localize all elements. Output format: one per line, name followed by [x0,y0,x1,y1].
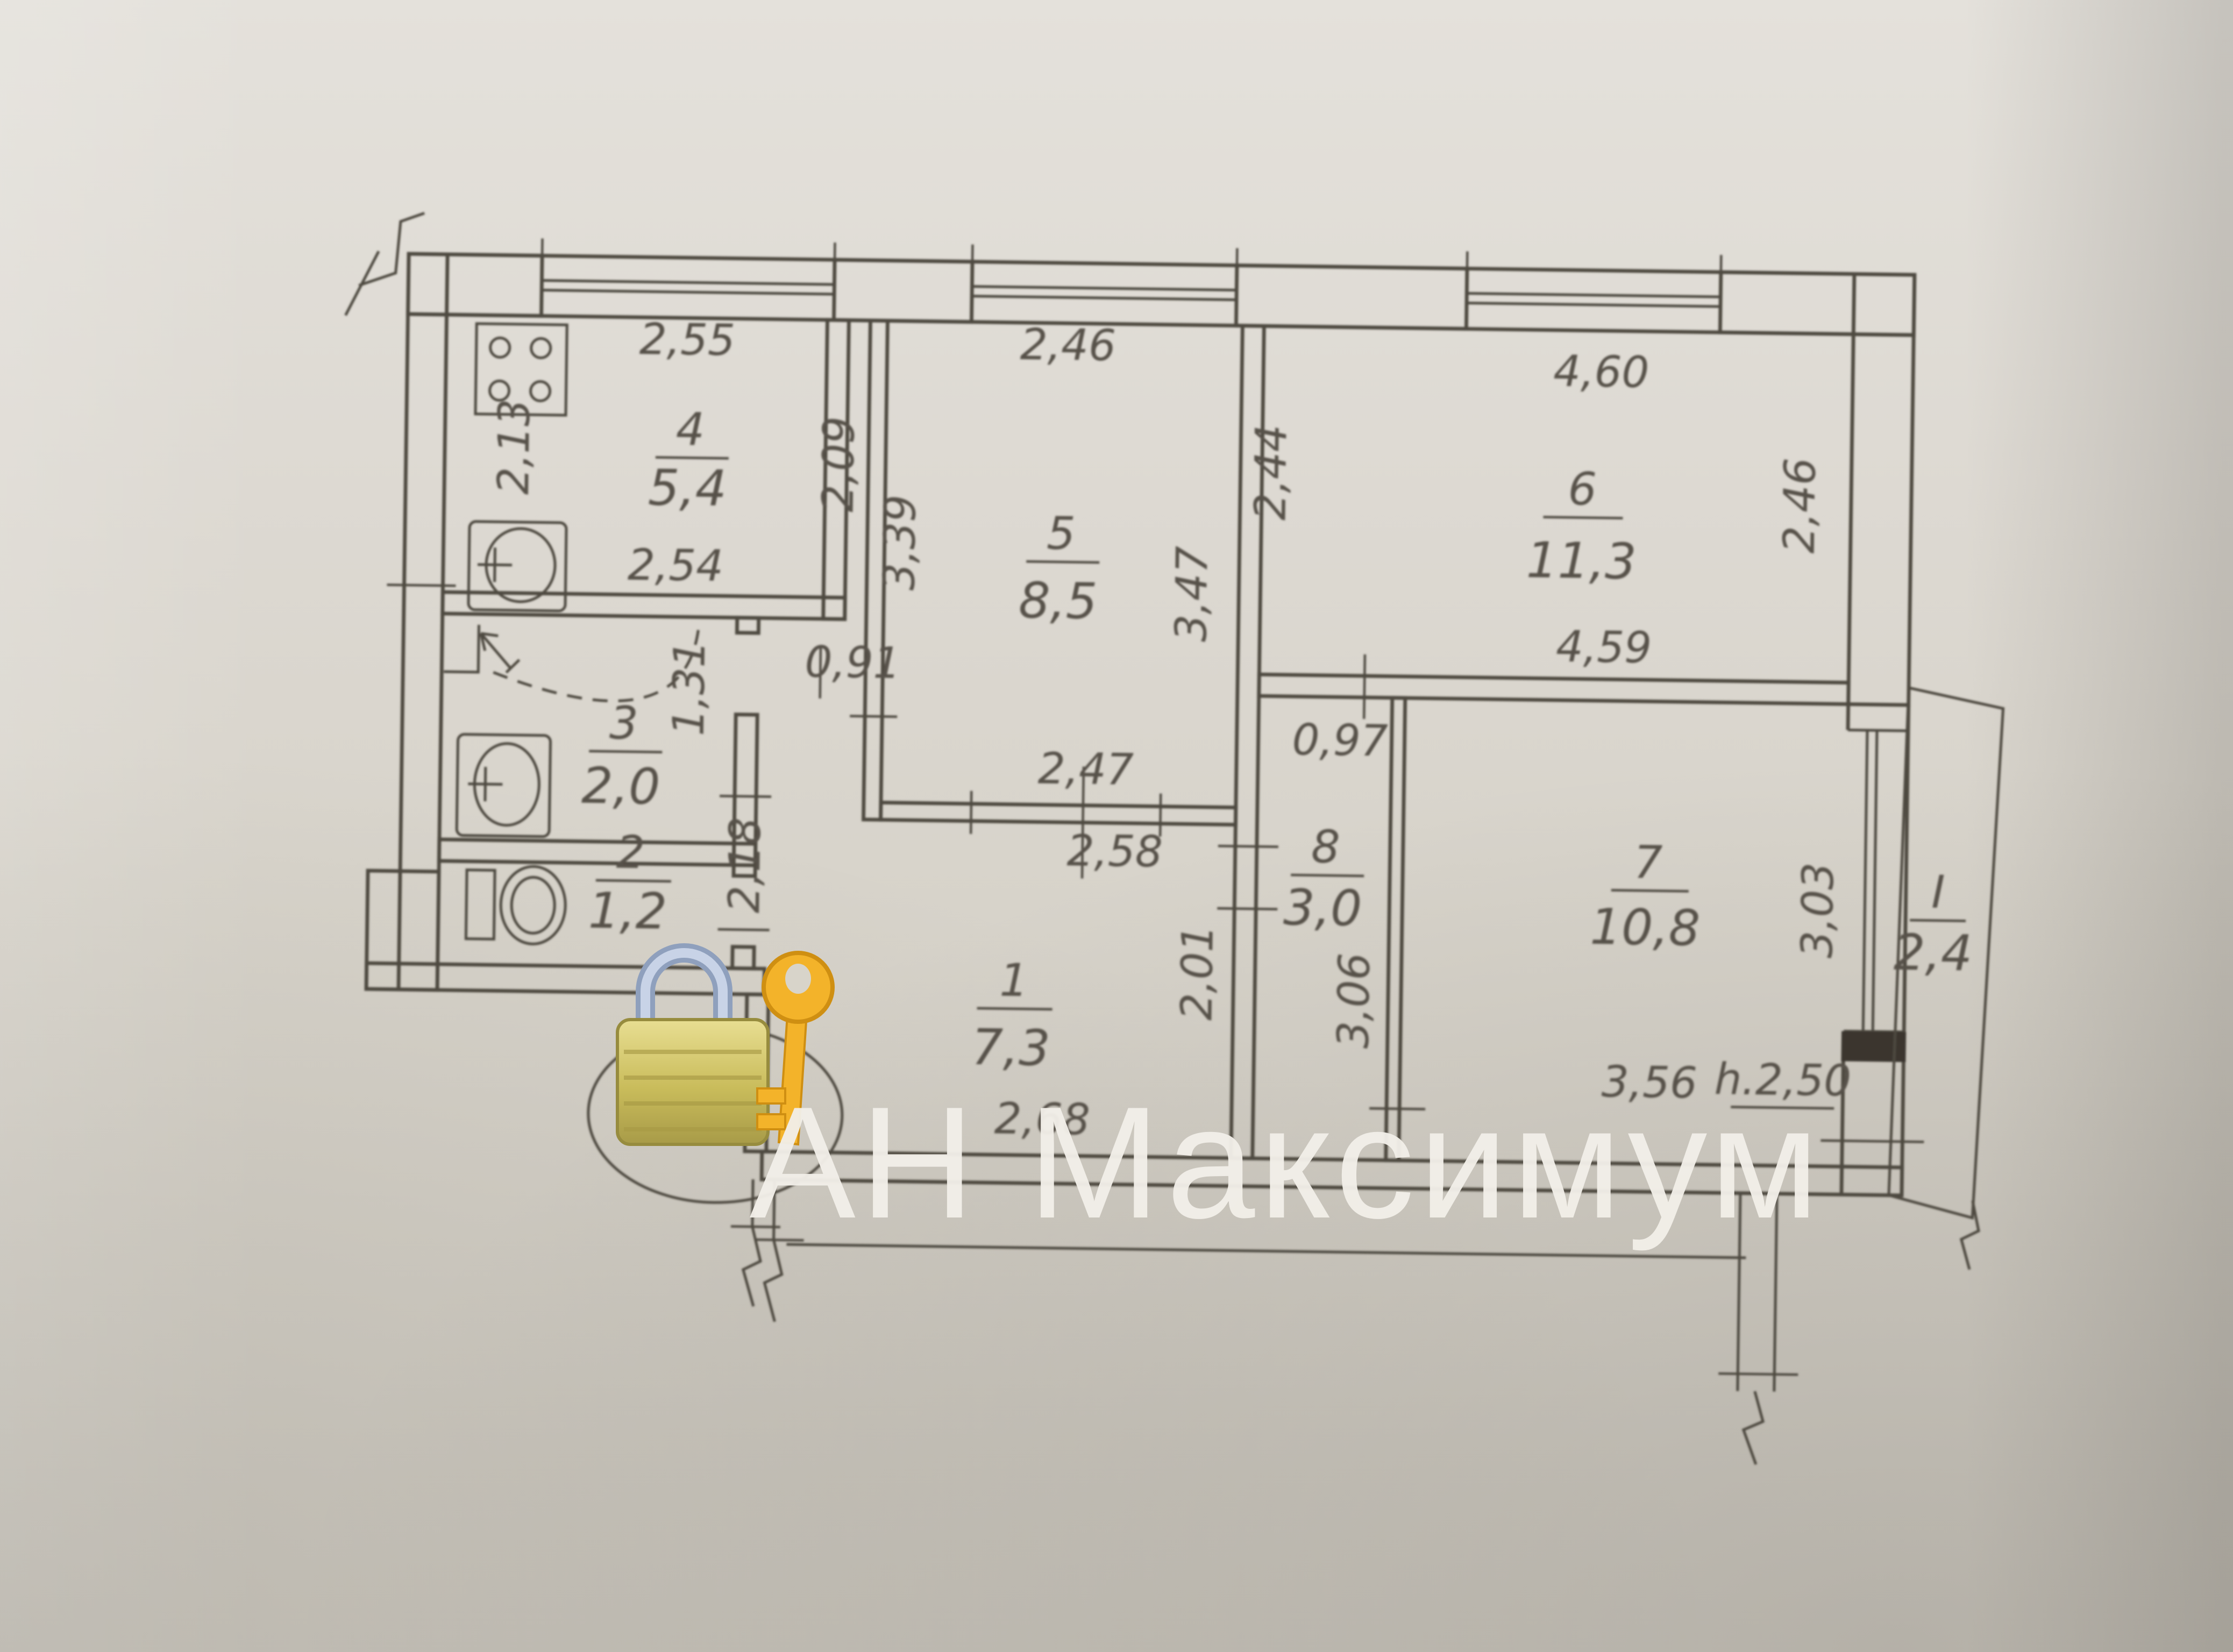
dim-room7-depth-right: 3,03 [1792,862,1843,958]
room-3-number: 3 [609,696,639,750]
room-6-number: 6 [1568,462,1597,516]
window-icon [542,280,1720,307]
dim-room8-width-top: 0,97 [1292,715,1389,766]
balcony-area: 2,4 [1893,924,1973,982]
dim-hall-depth-left: 2,18 [719,817,770,913]
room-5-number: 5 [1047,507,1076,560]
room-6-label: 6 11,3 [1526,462,1638,590]
dim-passage-width: 0,91 [805,637,901,688]
room-4-number: 4 [675,403,705,456]
balcony-window-icon [1863,730,1867,1031]
kitchen-sink-icon [468,522,566,611]
room-3-area: 2,0 [581,757,660,816]
dim-room6-width-bottom: 4,59 [1555,622,1652,673]
room-5-label: 5 8,5 [1018,507,1100,630]
dim-room6-depth-right: 2,46 [1774,457,1825,553]
wall-break-top-left [346,212,425,316]
dim-room5-depth-left: 3,39 [874,494,925,590]
balcony-number: I [1931,866,1945,918]
room-1-area: 7,3 [971,1019,1051,1077]
plan-lines: 2,55 2,13 2,54 2,46 2,09 3,39 3,47 2,44 … [330,212,2010,1468]
toilet-icon [466,866,566,945]
exterior-wall-left-step [366,871,439,990]
dim-kitchen-width-bottom: 2,54 [627,540,723,591]
bath-toilet-divider [439,839,756,865]
room-8-label: 8 3,0 [1283,820,1364,937]
room-4-label: 4 5,4 [648,402,729,517]
washbasin-icon [457,734,551,836]
dim-opening-width-top: 2,47 [1037,743,1134,794]
bath-right-wall-c [733,947,755,969]
room-5-area: 8,5 [1018,572,1098,630]
dim-room5-depth-right: 3,47 [1166,546,1217,643]
floor-plan-photo: 2,55 2,13 2,54 2,46 2,09 3,39 3,47 2,44 … [0,0,2233,1652]
room5-bottom-wall [881,802,1236,824]
room-8-area: 3,0 [1283,879,1362,937]
dim-hall-depth-right: 2,01 [1171,924,1222,1021]
dim-room5-left-outer: 2,09 [813,416,864,512]
room-6-area: 11,3 [1526,531,1637,590]
room-7-label: 7 10,8 [1590,835,1702,957]
bath-right-wall-a [737,618,758,633]
exterior-wall-right-upper [1848,274,1915,705]
room-4-area: 5,4 [648,459,727,517]
room6-bottom-wall [1259,674,1848,704]
room-1-number: 1 [999,953,1029,1007]
dim-kitchen-depth-left: 2,13 [488,398,539,495]
exterior-wall-top [408,254,1915,335]
lock-body [617,1020,768,1144]
shower-tray-icon [444,624,520,673]
dim-room5-right-outer: 2,44 [1245,424,1296,521]
dim-opening-width-bottom: 2,58 [1066,825,1163,877]
agency-watermark: АН Максимум [749,1073,1823,1252]
room-8-number: 8 [1311,821,1340,874]
room-7-number: 7 [1633,836,1663,889]
room-7-area: 10,8 [1590,898,1701,957]
dim-room5-width-top: 2,46 [1020,319,1116,371]
room-2-number: 2 [616,826,645,879]
room-3-label: 3 2,0 [581,696,663,816]
room-1-label: 1 7,3 [971,953,1053,1077]
dim-bath-depth-right: 1,31 [664,640,715,736]
floor-plan-drawing: 2,55 2,13 2,54 2,46 2,09 3,39 3,47 2,44 … [0,0,2233,1652]
dim-room6-width-top: 4,60 [1553,346,1649,397]
dim-kitchen-width-top: 2,55 [639,314,735,365]
room-2-area: 1,2 [588,882,667,941]
dim-room8-depth-left: 3,06 [1328,952,1379,1049]
dimension-ticks [380,237,1937,1142]
